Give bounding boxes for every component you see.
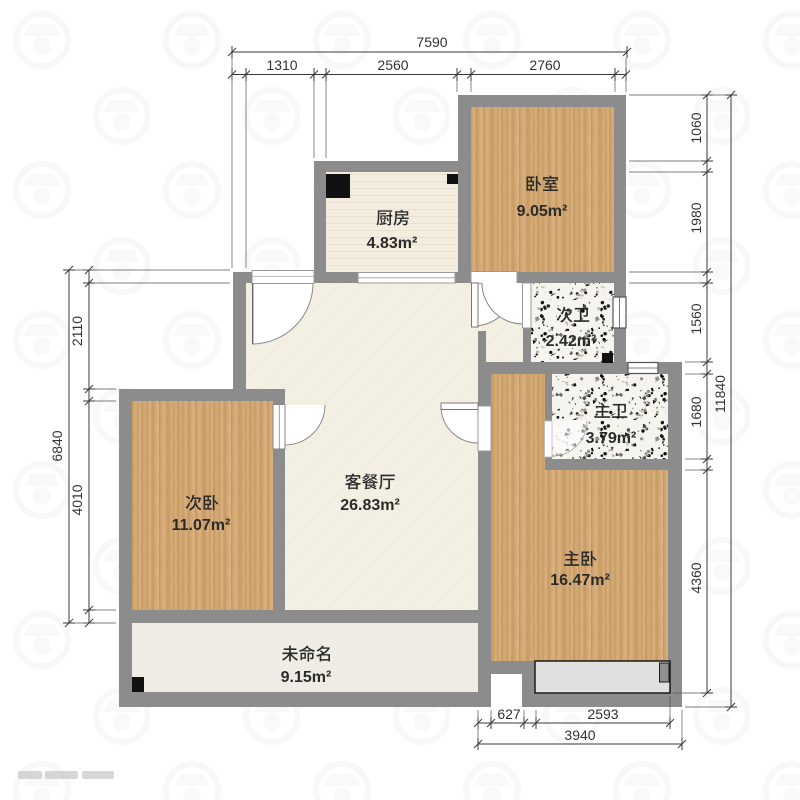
svg-text:次卫: 次卫 [556,301,590,326]
svg-text:4360: 4360 [688,562,704,593]
svg-text:16.47m²: 16.47m² [550,572,610,589]
svg-text:1980: 1980 [688,202,704,233]
svg-text:2593: 2593 [587,706,618,722]
svg-text:9.05m²: 9.05m² [517,203,568,220]
svg-text:未命名: 未命名 [282,640,333,665]
svg-text:厨房: 厨房 [376,204,410,229]
svg-text:3.79m²: 3.79m² [586,430,637,447]
svg-text:1560: 1560 [688,303,704,334]
svg-text:9.15m²: 9.15m² [281,669,332,686]
svg-text:4010: 4010 [69,484,85,515]
svg-text:1310: 1310 [266,57,297,73]
svg-text:627: 627 [497,706,521,722]
svg-text:11840: 11840 [712,375,728,413]
svg-text:客餐厅: 客餐厅 [345,468,396,493]
svg-text:卧室: 卧室 [525,170,559,195]
svg-text:2760: 2760 [529,57,560,73]
svg-text:2110: 2110 [69,316,85,346]
svg-text:26.83m²: 26.83m² [340,497,400,514]
svg-text:11.07m²: 11.07m² [172,517,231,534]
svg-text:主卧: 主卧 [563,545,597,570]
svg-text:1060: 1060 [688,112,704,143]
svg-text:2.42m²: 2.42m² [546,333,597,350]
svg-text:次卧: 次卧 [185,489,219,514]
svg-text:主卫: 主卫 [594,397,628,422]
svg-text:3940: 3940 [564,727,595,743]
svg-text:2560: 2560 [377,57,408,73]
svg-text:7590: 7590 [416,34,447,50]
svg-text:4.83m²: 4.83m² [367,235,418,252]
svg-text:6840: 6840 [49,430,65,461]
svg-text:1680: 1680 [688,396,704,427]
